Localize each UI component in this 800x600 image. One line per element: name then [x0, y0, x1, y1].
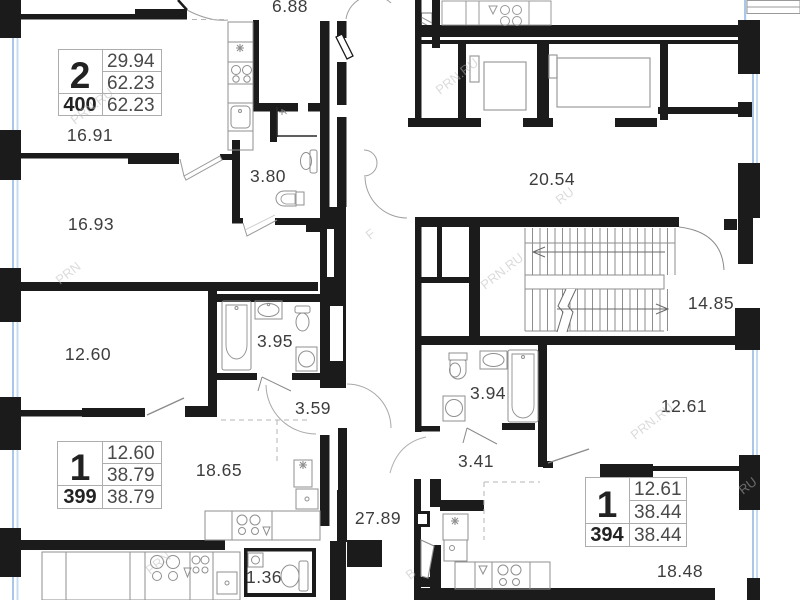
svg-text:38.79: 38.79 — [107, 465, 155, 486]
svg-text:12.60: 12.60 — [65, 344, 111, 364]
svg-text:3.59: 3.59 — [295, 398, 331, 418]
svg-text:27.89: 27.89 — [355, 508, 401, 528]
svg-text:3.80: 3.80 — [250, 166, 286, 186]
svg-text:62.23: 62.23 — [107, 73, 155, 94]
svg-text:6.88: 6.88 — [272, 0, 308, 16]
svg-text:16.91: 16.91 — [67, 125, 113, 145]
svg-text:12.61: 12.61 — [634, 479, 682, 500]
svg-text:14.85: 14.85 — [688, 293, 734, 313]
svg-text:3.94: 3.94 — [470, 383, 506, 403]
svg-text:2: 2 — [70, 55, 91, 96]
svg-text:29.94: 29.94 — [107, 51, 155, 72]
svg-text:18.65: 18.65 — [196, 460, 242, 480]
svg-text:12.60: 12.60 — [107, 443, 155, 464]
svg-text:3.41: 3.41 — [458, 451, 494, 471]
svg-text:1: 1 — [70, 447, 91, 488]
svg-text:38.44: 38.44 — [634, 502, 682, 523]
svg-text:38.79: 38.79 — [107, 487, 155, 508]
svg-text:3.95: 3.95 — [257, 331, 293, 351]
svg-text:18.48: 18.48 — [657, 561, 703, 581]
svg-text:38.44: 38.44 — [634, 525, 682, 546]
svg-text:1.36: 1.36 — [246, 567, 282, 587]
svg-text:16.93: 16.93 — [68, 214, 114, 234]
svg-text:1: 1 — [597, 484, 618, 525]
svg-text:394: 394 — [590, 524, 624, 546]
svg-text:399: 399 — [63, 486, 96, 508]
